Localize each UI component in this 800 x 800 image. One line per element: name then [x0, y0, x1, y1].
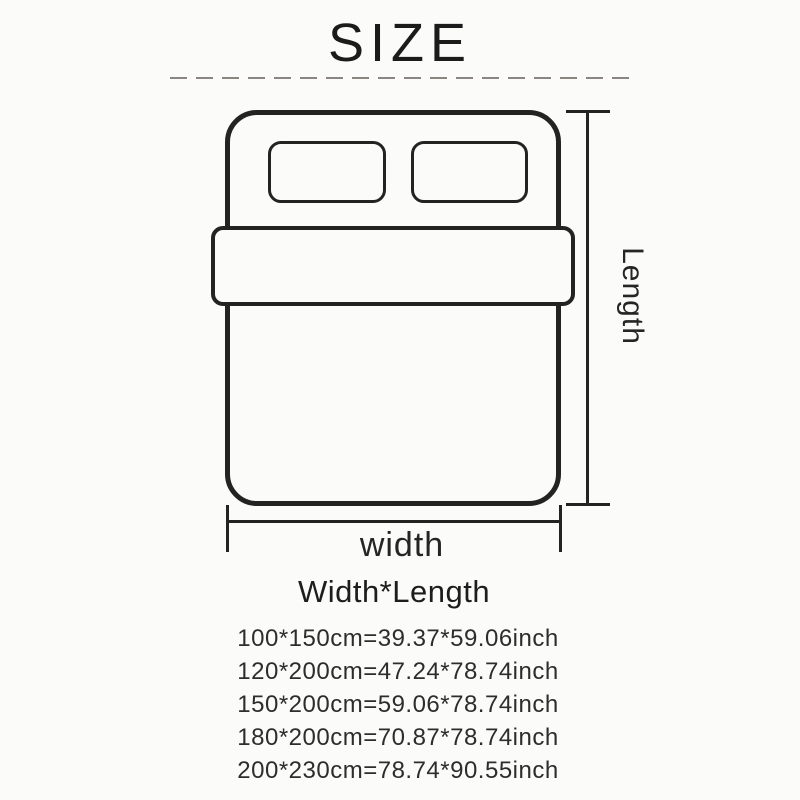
pillow-left — [268, 141, 386, 203]
dashed-divider-line — [170, 77, 630, 79]
length-dimension-line — [586, 110, 589, 506]
size-row: 120*200cm=47.24*78.74inch — [0, 655, 796, 688]
size-row: 100*150cm=39.37*59.06inch — [0, 622, 796, 655]
length-dimension-cap-top — [566, 110, 610, 113]
size-table-rows: 100*150cm=39.37*59.06inch 120*200cm=47.2… — [0, 622, 796, 787]
size-chart-page: SIZE Length width Width*Length 100*150cm… — [0, 0, 800, 800]
blanket-band — [211, 226, 575, 306]
size-table-header: Width*Length — [298, 574, 490, 610]
width-dimension-line — [227, 520, 561, 523]
page-title: SIZE — [0, 12, 800, 74]
width-dimension-cap-right — [559, 505, 562, 552]
size-row: 180*200cm=70.87*78.74inch — [0, 721, 796, 754]
size-row: 200*230cm=78.74*90.55inch — [0, 754, 796, 787]
length-dimension-cap-bottom — [566, 503, 610, 506]
length-label: Length — [615, 247, 649, 345]
pillow-right — [411, 141, 528, 203]
width-label: width — [360, 526, 444, 565]
size-row: 150*200cm=59.06*78.74inch — [0, 688, 796, 721]
width-dimension-cap-left — [226, 505, 229, 552]
